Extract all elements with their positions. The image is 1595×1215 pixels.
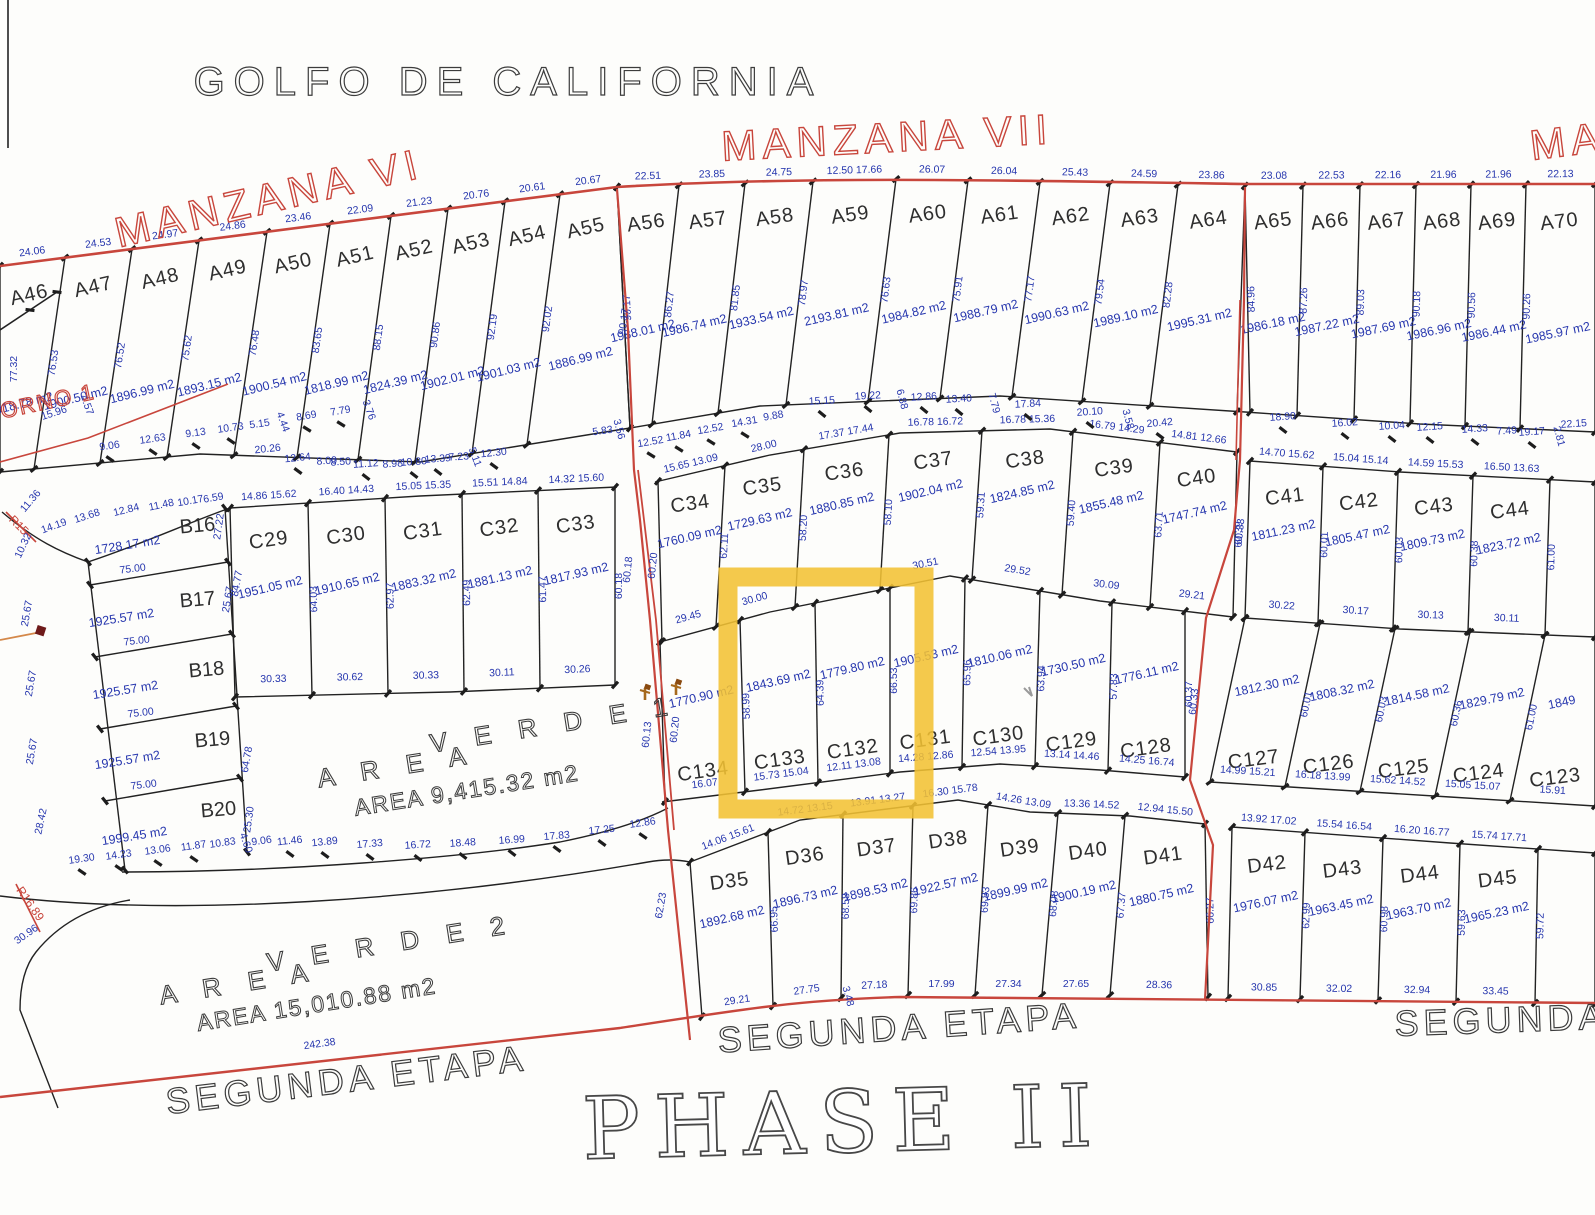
lot-dim-top: 15.65 13.09 [662,451,719,475]
lot-area: 1829.79 m2 [1458,685,1526,712]
survey-tick [106,456,113,461]
lot-area: 1900.54 m2 [241,369,308,399]
dim-label: 60.18 [621,556,636,584]
dim-label: 62.23 [653,891,669,919]
dim-label: 16.72 [404,838,431,852]
lot-dim-top: 20.61 [518,180,546,195]
lot-area: 1963.45 m2 [1307,892,1375,919]
lot-dim-top: 21.96 [1430,169,1457,181]
dim-label: 6.59 [202,490,224,505]
lot-dim-bottom: 32.02 [1326,983,1353,995]
lot-label-A49: A49 [206,255,249,285]
survey-tick [1070,429,1076,435]
lot-dim-side: 92.19 [485,313,500,341]
street-line [1236,300,1240,460]
dim-label: 13.06 [144,842,172,858]
lot-divider [690,862,702,1017]
block-bottom-line [235,685,615,697]
lot-dim-top: 13.36 14.52 [1064,797,1120,811]
survey-tick [414,855,421,861]
lot-dim-side: 90.56 [1466,292,1479,319]
survey-tick [1230,614,1236,621]
lot-area: 1814.58 m2 [1383,681,1451,708]
dim-label: 8.69 [295,408,317,423]
lot-area: 1896.99 m2 [108,377,175,407]
survey-tick [1535,846,1541,853]
survey-tick [1541,632,1548,637]
dim-label: 13.89 [311,835,339,850]
lot-area: 1812.30 m2 [1233,672,1301,699]
survey-tick [877,587,883,593]
lot-dim-bottom: 30.17 [1342,604,1369,618]
dim-label: 18.90 [1269,410,1296,424]
dim-label: 11.48 [148,497,176,514]
lot-dim-top: 23.08 [1261,170,1288,182]
lot-label-C38: C38 [1004,446,1046,473]
dim-label: 12.15 [1416,420,1443,434]
lot-dim-bottom: 30.62 [337,671,364,684]
lot-dim-top: 17.37 17.44 [818,422,875,443]
road-edge [0,860,690,906]
lot-area: 1880.85 m2 [808,490,876,519]
survey-tick [612,484,618,491]
lot-label-C40: C40 [1175,465,1217,492]
survey-tick [887,770,893,777]
lot-area: 1892.68 m2 [698,903,766,932]
survey-tick [362,474,369,480]
lot-dim-bottom: 16.18 13.99 [1295,768,1351,783]
manzana-vii-boundary [617,180,1595,187]
lot-dim-top: 16.20 16.77 [1394,823,1450,839]
dim-label: 17.83 [543,829,570,843]
lot-label-C37: C37 [912,447,954,474]
survey-tick [707,440,715,445]
survey-tick [537,685,543,692]
survey-tick [612,682,618,689]
survey-tick [286,851,293,856]
survey-tick [164,454,171,460]
lot-dim-top: 20.67 [574,173,602,188]
survey-tick [1122,813,1129,819]
survey-tick [812,600,818,607]
survey-tick [649,421,656,427]
lot-dim-bottom: 30.85 [1251,981,1278,993]
survey-tick [815,779,821,786]
dim-label: 7.49 [1496,424,1517,437]
survey-tick [1182,608,1188,615]
dim-label: 60.33 [1187,688,1202,716]
survey-tick [598,840,605,845]
lot-dim-side: 75.91 [950,275,965,303]
survey-tick [956,409,963,415]
dim-label: 7.79 [985,392,1002,415]
lot-label-A69: A69 [1477,208,1518,235]
service-line [0,633,36,640]
lot-dim-bottom: 27.18 [861,979,888,992]
survey-tick [1147,604,1153,610]
lot-dim-top: 24.59 [1131,168,1158,181]
lot-dim-bottom: 30.11 [489,666,515,679]
lot-label-D35: D35 [708,868,750,895]
survey-tick [1107,992,1114,998]
lot-label-C32: C32 [478,514,520,541]
lot-dim-bottom: 75.00 [130,777,158,792]
survey-tick [459,491,465,498]
lot-area: 1855.48 m2 [1077,488,1145,517]
dim-label: 15.15 [808,394,835,407]
lot-label-A51: A51 [334,242,377,272]
lot-label-A62: A62 [1050,203,1091,230]
dim-label: 12.52 [696,421,724,437]
label-segunda-etapa-center: SEGUNDA ETAPA [716,994,1082,1060]
lot-label-B16: B16 [179,514,216,539]
lot-dim-top: 23.85 [699,168,726,181]
lot-dim-side: 83.65 [310,326,326,354]
label-area-verde2: V E R D E 2 [265,909,517,978]
survey-tick [154,860,161,865]
lot-dim-bottom: 30.13 [1417,609,1444,622]
lot-area: 1810.06 m2 [966,642,1034,671]
lot-area: 1883.32 m2 [390,566,458,595]
dim-label: 9.88 [762,408,784,423]
lot-dim-bottom: 75.00 [119,561,147,576]
lot-dim-top: 14.86 15.62 [241,488,297,503]
lot-dim-side: 58.99 [740,693,753,720]
lot-area: 1922.57 m2 [912,870,980,899]
survey-tick [321,852,328,857]
lot-dim-side: 59.31 [974,491,988,518]
dim-label: 10.04 [1378,419,1405,433]
survey-tick [31,466,38,472]
lot-area: 1995.31 m2 [1166,306,1234,335]
lot-label-B17: B17 [179,588,216,613]
title-phase-ii: PHASE II [581,1066,1107,1180]
lot-dim-bottom: 15.05 15.07 [1445,778,1501,793]
dim-label: 25.67 [23,669,39,697]
survey-tick [97,725,103,732]
dim-label: 19.30 [68,851,96,867]
lot-label-B18: B18 [188,658,225,683]
survey-tick [1356,789,1363,794]
lot-dim-side: 81.85 [728,284,743,312]
survey-tick [1037,588,1043,595]
dim-label: 12.30 [480,446,508,461]
lot-dim-side: 76.53 [46,349,62,377]
lot-dim-bottom: 15.62 14.52 [1370,773,1426,788]
dim-label: 14.31 [730,414,758,430]
survey-tick [92,653,98,660]
lot-label-C31: C31 [402,518,444,545]
lot-dim-side: 90.86 [428,321,443,349]
dim-label: 17.84 [1014,397,1041,410]
survey-tick [765,829,771,836]
survey-tick [303,427,311,432]
lot-label-A57: A57 [687,207,728,234]
title-golfo-de-california: GOLFO DE CALIFORNIA [194,60,823,104]
lot-label-B20: B20 [200,798,237,823]
survey-tick [1506,798,1513,803]
survey-tick [921,407,928,413]
survey-tick [1281,784,1288,789]
lot-area: 1893.15 m2 [176,370,243,400]
lot-label-C42: C42 [1338,489,1380,516]
lot-label-A52: A52 [393,235,436,265]
lot-label-D42: D42 [1246,851,1288,878]
lot-dim-side: 82.28 [1160,281,1175,309]
survey-tick [102,797,108,804]
lot-dim-top: 26.04 [991,165,1018,178]
lot-dim-bottom: 28.36 [1146,979,1173,991]
dim-label: 22.15 [1560,417,1587,431]
lot-label-C35: C35 [741,473,783,500]
survey-tick [969,577,975,583]
lot-dim-bottom: 29.21 [1178,588,1206,603]
lot-dim-bottom: 29.21 [723,993,751,1009]
survey-tick [227,505,233,512]
survey-tick [1157,439,1163,445]
survey-tick [1206,779,1213,784]
lot-dim-bottom: 30.22 [1268,599,1295,613]
lot-area: 1898.53 m2 [842,876,910,905]
lot-area: 1925.57 m2 [88,606,155,630]
survey-tick [647,453,655,458]
survey-tick [865,406,872,412]
lot-dim-side: 59.72 [1534,913,1547,940]
survey-tick [741,433,749,438]
survey-tick [410,472,417,478]
dim-label: 3.76 [360,398,378,421]
lot-dim-bottom: 30.26 [564,663,591,676]
lot-dim-side: 84.96 [1245,286,1258,313]
lot-area: 1811.23 m2 [1250,517,1317,544]
lot-dim-side: 77.17 [1022,275,1037,303]
survey-tick [1079,398,1086,404]
dim-label: 8.50 [330,455,351,468]
lot-dim-bottom: 30.33 [413,669,440,682]
survey-tick [385,690,391,697]
label-segunda-etapa-right: SEGUNDA ETA [1394,992,1595,1044]
dim-label: 10.80 [400,455,427,469]
lot-divider [1245,461,1250,618]
dim-label: 5.83 [592,424,614,439]
survey-tick [337,422,345,427]
survey-tick [792,604,798,610]
lot-dim-top: 14.59 15.53 [1408,456,1464,471]
survey-tick [1302,829,1308,836]
survey-tick [1320,463,1326,469]
lot-area: 1951.05 m2 [236,573,304,602]
dim-label: 12.64 [284,451,312,466]
dim-label: 7.23 [448,450,469,463]
lot-dim-side: 27.22 [211,513,227,541]
lot-dim-side: 78.97 [796,279,811,307]
lot-dim-top: 24.75 [766,166,793,179]
lot-label-A47: A47 [72,272,115,302]
survey-tick [1032,763,1038,770]
lot-area: 1902.04 m2 [897,476,965,505]
lot-dim-side: 76.52 [112,342,128,370]
survey-tick [85,558,91,565]
survey-tick [962,575,968,582]
dim-label: 12.63 [139,431,167,447]
lot-dim-top: 22.09 [346,202,374,217]
dim-label: 11.36 [18,487,44,514]
survey-tick [1341,433,1348,439]
survey-tick [97,460,104,466]
survey-tick [1247,458,1253,464]
lot-label-A60: A60 [907,201,948,228]
lot-label-D36: D36 [784,843,826,870]
lot-dim-bottom: 17.99 [928,978,954,990]
dim-label: 3.56 [610,418,627,441]
title-manzana-partial: MANZA [1527,101,1595,169]
lot-dim-bottom: 33.45 [1482,985,1509,997]
lot-label-A54: A54 [506,221,549,251]
lot-dim-top: 16.40 14.43 [318,483,374,498]
survey-tick [639,833,646,838]
survey-tick [309,692,315,699]
lot-area: 1809.73 m2 [1399,527,1467,554]
survey-tick [87,581,93,588]
lot-dim-bottom: 15.91 [1539,784,1566,798]
survey-tick [366,854,373,859]
lot-dim-top: 15.05 15.35 [395,479,451,494]
dim-label: 13.68 [73,506,102,526]
lot-label-D37: D37 [855,834,897,861]
survey-tick [115,865,122,870]
lot-area: 1880.75 m2 [1128,881,1196,910]
dim-label: 25.67 [19,599,35,627]
lot-dim-top: 15.74 17.71 [1471,828,1527,844]
lot-area: 1760.09 m2 [656,523,724,552]
lot-dim-side: 90.26 [1521,293,1534,320]
lot-dim-top: 21.96 [1485,168,1512,180]
lot-dim-side: 62.11 [718,533,731,559]
dim-label: 60.33 [1233,518,1248,546]
survey-tick [742,788,748,795]
dim-label: 10.17 [176,493,204,509]
survey-tick [783,402,790,408]
dim-label: 14.23 [105,847,133,863]
dim-label: 20.26 [254,442,282,457]
lot-dim-side: 86.27 [662,291,677,319]
utility-pole-icon [671,685,681,688]
lot-dim-top: 21.23 [405,195,433,210]
lot-dim-top: 15.04 15.14 [1333,451,1389,467]
dim-label: 242.38 [303,1036,337,1052]
lot-dim-top: 22.53 [1318,169,1345,181]
lot-dim-bottom: 30.11 [1494,612,1520,625]
street-line [638,470,674,830]
survey-map-canvas: A461918.78 m224.0677.32A471900.50 m224.5… [0,0,1595,1215]
label-segunda-etapa-left: SEGUNDA ETAPA [163,1037,529,1122]
lot-label-C41: C41 [1264,483,1306,510]
dim-label: 5.15 [249,417,271,432]
survey-tick [225,558,231,565]
lot-label-D39: D39 [999,835,1041,862]
lot-label-A67: A67 [1366,208,1407,235]
lot-dim-top: 24.53 [84,236,112,251]
dim-label: 25.67 [220,585,236,613]
dim-label: 9.06 [99,439,121,454]
lot-dim-top: 14.81 12.66 [1171,428,1228,447]
survey-tick [490,463,497,468]
lot-area: 1910.65 m2 [313,570,381,599]
lot-dim-bottom: 30.33 [260,673,287,686]
lot-dim-side: 90.18 [1411,291,1424,318]
lot-dim-bottom: 29.45 [674,608,703,627]
utility-pole-icon [640,690,650,693]
survey-tick [675,447,683,452]
lot-dim-top: 24.06 [18,244,46,259]
lot-dim-bottom: 16.07 [691,776,719,791]
lot-label-A46: A46 [8,280,51,310]
dim-label: 11.12 [353,457,379,471]
lot-area: 1817.93 m2 [542,560,610,589]
survey-tick [979,428,985,434]
lot-dim-top: 22.16 [1375,169,1402,181]
survey-tick [190,856,197,861]
survey-tick [382,495,388,502]
survey-tick [1247,409,1253,416]
survey-tick [1431,793,1438,798]
lot-area: 1728.17 m2 [94,533,161,557]
lot-dim-side: 87.26 [1298,287,1311,314]
survey-tick [1380,835,1386,841]
survey-tick [1147,403,1154,409]
lot-area: 1899.99 m2 [982,876,1050,905]
lot-dim-side: 89.03 [1355,289,1368,316]
lot-area: 1925.57 m2 [94,748,161,772]
lot-line [100,706,236,729]
dim-label: 11.84 [665,428,692,444]
survey-tick [1109,599,1115,606]
lot-dim-top: 15.51 14.84 [472,475,528,490]
survey-tick [1470,472,1476,478]
block-bottom-line [0,428,630,472]
survey-tick [715,410,722,416]
lot-dim-bottom: 14.99 15.21 [1220,764,1276,779]
lot-label-A56: A56 [626,209,667,236]
lot-label-D44: D44 [1399,861,1441,888]
lot-dim-bottom: 75.00 [123,633,151,648]
dim-label: 4.44 [274,410,292,433]
lot-dim-top: 12.94 15.50 [1137,801,1194,819]
survey-tick [1407,420,1413,427]
survey-tick [1059,592,1065,598]
lot-dim-top: 22.13 [1547,168,1574,180]
lot-dim-bottom: 29.52 [1004,562,1032,578]
lot-label-C33: C33 [555,511,597,538]
dim-label: 64.78 [239,745,255,773]
lot-label-D45: D45 [1477,866,1519,893]
lot-dim-top: 16.78 16.72 [908,415,964,428]
lot-line [88,562,125,870]
survey-tick [508,850,515,856]
lot-dim-bottom: 27.34 [995,978,1021,990]
lot-dim-top: 15.54 16.54 [1316,817,1372,833]
survey-tick [231,452,238,458]
survey-tick [1528,442,1535,448]
survey-tick [524,442,531,448]
dim-label: 11.46 [276,834,303,849]
lot-line [105,778,240,801]
survey-tick [886,432,892,438]
lot-area: 1729.63 m2 [726,505,794,534]
survey-tick [535,487,541,494]
dim-label: 13.40 [945,392,972,405]
dim-label: 7.79 [329,403,351,418]
